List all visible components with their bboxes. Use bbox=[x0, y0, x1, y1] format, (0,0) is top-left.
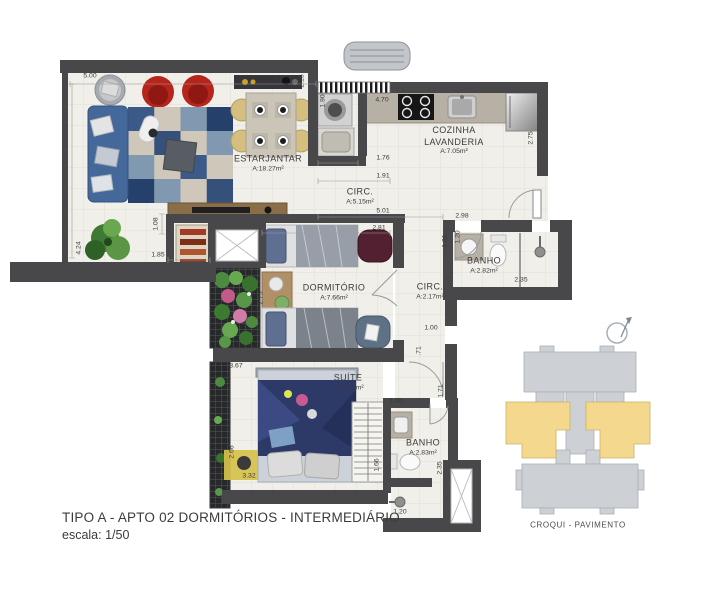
coffee-table bbox=[163, 139, 196, 172]
dim-hall-w1: 1.76 bbox=[376, 156, 389, 163]
dim-living-width: 5.00 bbox=[83, 74, 96, 81]
room-label-cozinha: COZINHA LAVANDERIA A:7.05m² bbox=[424, 125, 484, 157]
plan-scale: escala: 1/50 bbox=[62, 528, 129, 542]
dim-banho1-length: 2.35 bbox=[514, 278, 527, 285]
room-label-estarjantar: ESTARJANTAR A:18.27m² bbox=[234, 154, 302, 175]
dim-banho1-counter: 1.20 bbox=[456, 230, 463, 243]
dim-suite-depth: 2.66 bbox=[230, 445, 237, 458]
dim-circ2-h: 1.71 bbox=[439, 384, 446, 397]
dim-closet-h: 1.66 bbox=[375, 458, 382, 471]
room-label-banho1: BANHO A:2.82m² bbox=[467, 256, 501, 277]
dim-laundry-height: 2.15 bbox=[300, 74, 307, 87]
dim-hall-w2: 1.91 bbox=[376, 174, 389, 181]
room-label-suite: SUÍTE A:10.63m² bbox=[332, 373, 363, 394]
dim-kitchen-depth: 2.75 bbox=[529, 131, 536, 144]
dim-kitchen-width: 4.70 bbox=[375, 98, 388, 105]
single-bed-2 bbox=[262, 308, 358, 350]
dim-living-height: 4.24 bbox=[77, 241, 84, 254]
stool-1 bbox=[237, 456, 251, 470]
dim-banho2-len: 2.35 bbox=[438, 461, 445, 474]
toilet-tank bbox=[491, 235, 506, 242]
room-label-circ1: CIRC. A:5.15m² bbox=[346, 187, 374, 208]
dim-suite-bottom: 3.32 bbox=[242, 474, 255, 481]
plan-title: TIPO A - APTO 02 DORMITÓRIOS - INTERMEDI… bbox=[62, 510, 400, 525]
dim-shelf-height: 1.08 bbox=[154, 217, 161, 230]
room-label-circ2: CIRC. A:2.17m² bbox=[416, 282, 444, 303]
fridge bbox=[506, 93, 538, 131]
dim-circ2-w: 1.00 bbox=[424, 326, 437, 333]
dim-shelf-width: 1.85 bbox=[151, 253, 164, 260]
croqui-sketch bbox=[506, 317, 650, 514]
north-arrow bbox=[607, 317, 632, 343]
dim-laundry-inner: 1.90 bbox=[321, 94, 328, 107]
dim-suite-width: 3.67 bbox=[229, 364, 242, 371]
toilet2-tank bbox=[390, 454, 397, 469]
dim-dorm-depth: 2.73 bbox=[259, 291, 266, 304]
dim-circ2-seg: .71 bbox=[417, 346, 424, 355]
room-label-dormitorio: DORMITÓRIO A:7.66m² bbox=[303, 283, 366, 304]
ac-condenser bbox=[344, 42, 410, 70]
mirror bbox=[269, 277, 283, 291]
tv bbox=[192, 207, 250, 213]
desk bbox=[262, 272, 292, 310]
room-label-banho2: BANHO A:2.83m² bbox=[406, 438, 440, 459]
dim-hall-w3: 5.01 bbox=[376, 209, 389, 216]
dim-banho1-height: 1.91 bbox=[443, 234, 450, 247]
single-bed-1 bbox=[262, 225, 358, 267]
bean-bag-1 bbox=[358, 230, 392, 262]
shower-head-2 bbox=[395, 497, 405, 507]
dim-closet-w: 1.35 bbox=[389, 399, 402, 406]
shower-head bbox=[535, 247, 545, 257]
bath-sink bbox=[461, 239, 477, 255]
dim-banho1-width: 2.98 bbox=[455, 214, 468, 221]
dim-dorm-width: 2.81 bbox=[372, 226, 385, 233]
laundry-window bbox=[318, 82, 390, 93]
floor-plan-page: ESTARJANTAR A:18.27m² COZINHA LAVANDERIA… bbox=[0, 0, 708, 600]
croqui-label: CROQUI - PAVIMENTO bbox=[530, 521, 626, 530]
